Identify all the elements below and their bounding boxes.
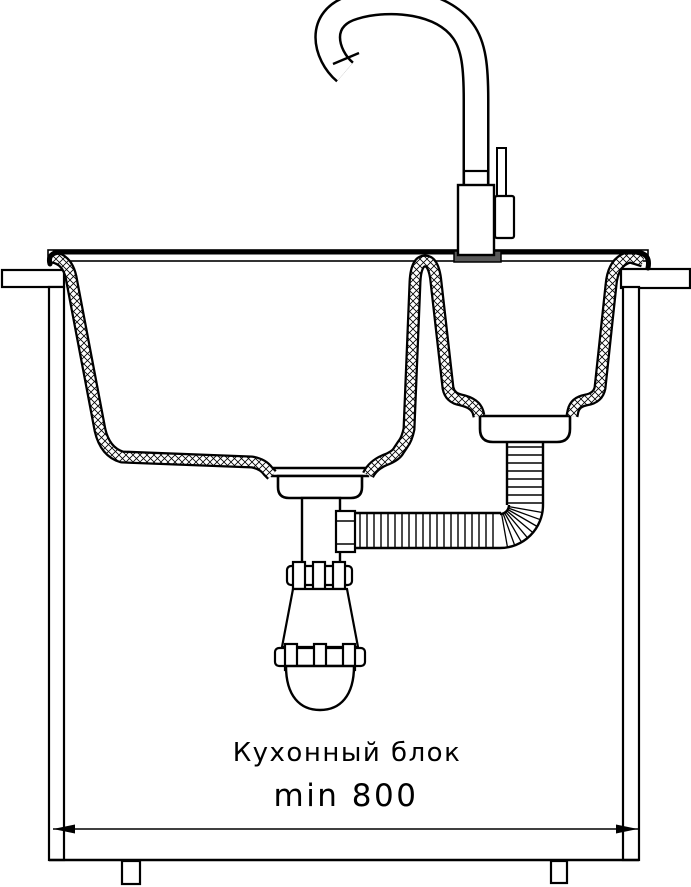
dimension-label: min 800 bbox=[274, 778, 419, 814]
diagram-svg: Кухонный блок min 800 bbox=[0, 0, 691, 887]
faucet-handle-block bbox=[495, 196, 514, 238]
hose-horizontal-ribs bbox=[360, 513, 493, 548]
faucet-spout-body bbox=[328, 2, 476, 192]
trap-cup bbox=[286, 666, 354, 710]
hose-vertical-ribs bbox=[507, 447, 543, 503]
faucet-body bbox=[458, 185, 494, 255]
hose-nut bbox=[336, 511, 355, 552]
divider-wall-hatch bbox=[368, 261, 479, 475]
cabinet-foot-right bbox=[551, 861, 567, 883]
trap-body bbox=[282, 589, 358, 647]
coupling-tab bbox=[313, 562, 325, 589]
cabinet-left-wall bbox=[49, 287, 64, 860]
dimension: Кухонный блок min 800 bbox=[53, 738, 638, 834]
cabinet-caption: Кухонный блок bbox=[233, 738, 462, 768]
coupling-tab bbox=[293, 562, 305, 589]
cabinet-right-wall bbox=[623, 287, 639, 860]
sink-installation-diagram: Кухонный блок min 800 bbox=[0, 0, 691, 887]
faucet bbox=[328, 2, 514, 262]
cabinet-foot-left bbox=[122, 861, 140, 884]
main-drain-flange bbox=[278, 476, 362, 498]
divider-wall-outline bbox=[368, 261, 479, 475]
secondary-drain-flange bbox=[480, 416, 570, 442]
faucet-handle-lever bbox=[497, 148, 506, 199]
tailpipe bbox=[302, 498, 340, 567]
coupling-tab bbox=[333, 562, 345, 589]
drain-plumbing bbox=[272, 416, 570, 710]
countertop-left bbox=[2, 270, 64, 287]
countertop-right bbox=[621, 269, 690, 288]
main-bowl-wall-hatch bbox=[52, 257, 272, 475]
